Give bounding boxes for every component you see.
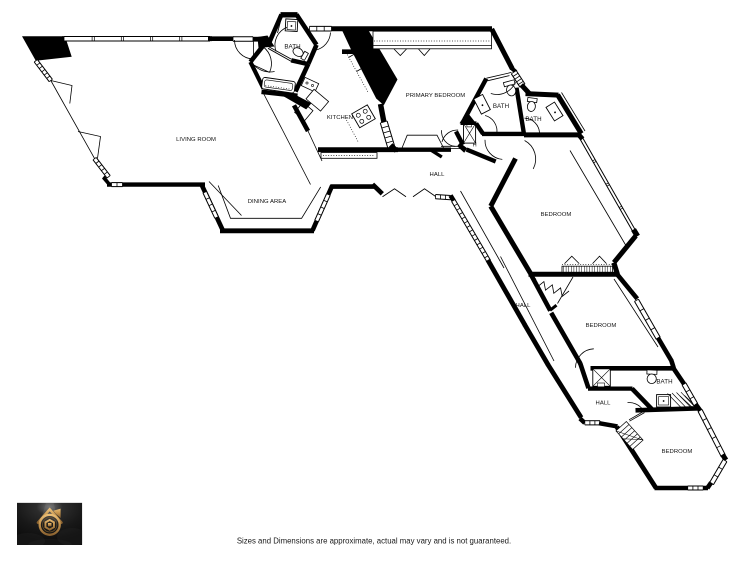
svg-text:BEDROOM: BEDROOM <box>662 449 693 455</box>
svg-text:HALL: HALL <box>430 172 446 178</box>
svg-text:KITCHEN: KITCHEN <box>327 115 353 121</box>
svg-text:LIVING ROOM: LIVING ROOM <box>176 137 216 143</box>
svg-text:BATH: BATH <box>493 103 509 110</box>
svg-text:BATH: BATH <box>656 379 672 386</box>
svg-text:Sizes and Dimensions are appro: Sizes and Dimensions are approximate, ac… <box>237 537 511 546</box>
svg-text:BEDROOM: BEDROOM <box>541 212 572 218</box>
svg-text:DINING AREA: DINING AREA <box>248 199 287 205</box>
svg-text:HALL: HALL <box>516 303 532 309</box>
svg-text:HALL: HALL <box>596 401 612 407</box>
svg-text:BEDROOM: BEDROOM <box>586 323 617 329</box>
svg-text:BATH: BATH <box>525 116 541 123</box>
svg-text:PRIMARY BEDROOM: PRIMARY BEDROOM <box>406 93 465 99</box>
